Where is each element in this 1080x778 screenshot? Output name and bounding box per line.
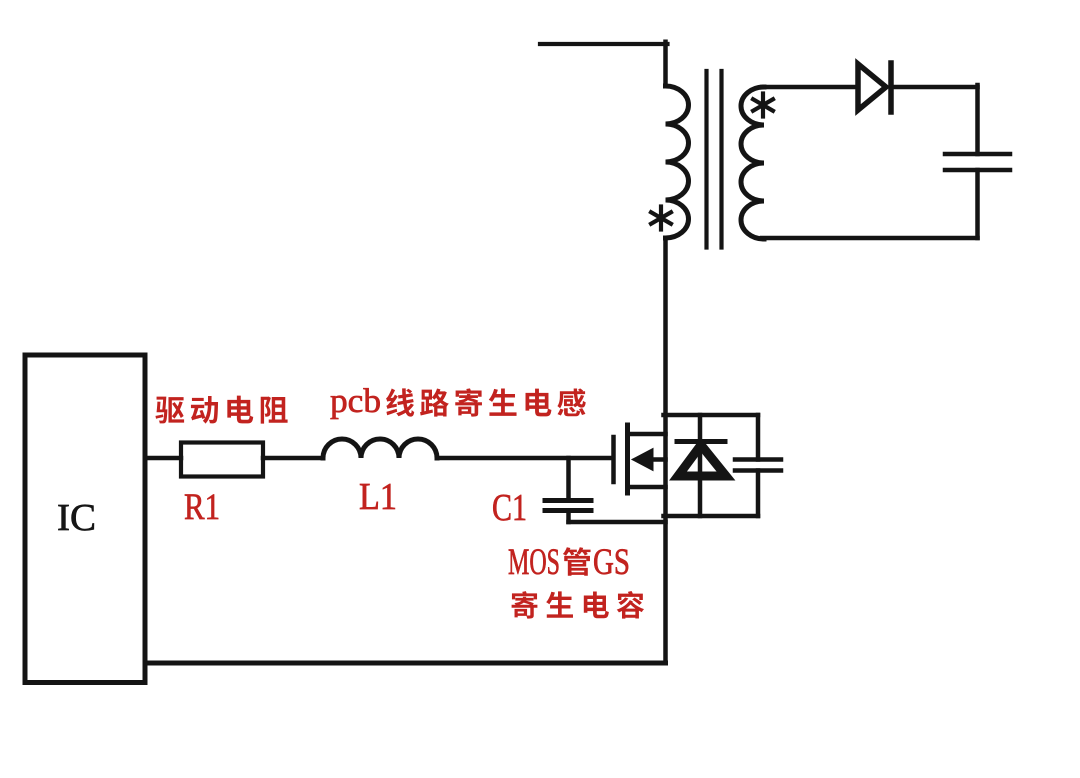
svg-text:pcb: pcb: [330, 383, 381, 420]
svg-text:C1: C1: [492, 487, 527, 529]
svg-text:IC: IC: [57, 497, 96, 539]
svg-text:L1: L1: [359, 476, 397, 518]
svg-text:MOS: MOS: [508, 542, 560, 583]
svg-text:R1: R1: [184, 487, 220, 528]
svg-text:GS: GS: [593, 542, 630, 583]
